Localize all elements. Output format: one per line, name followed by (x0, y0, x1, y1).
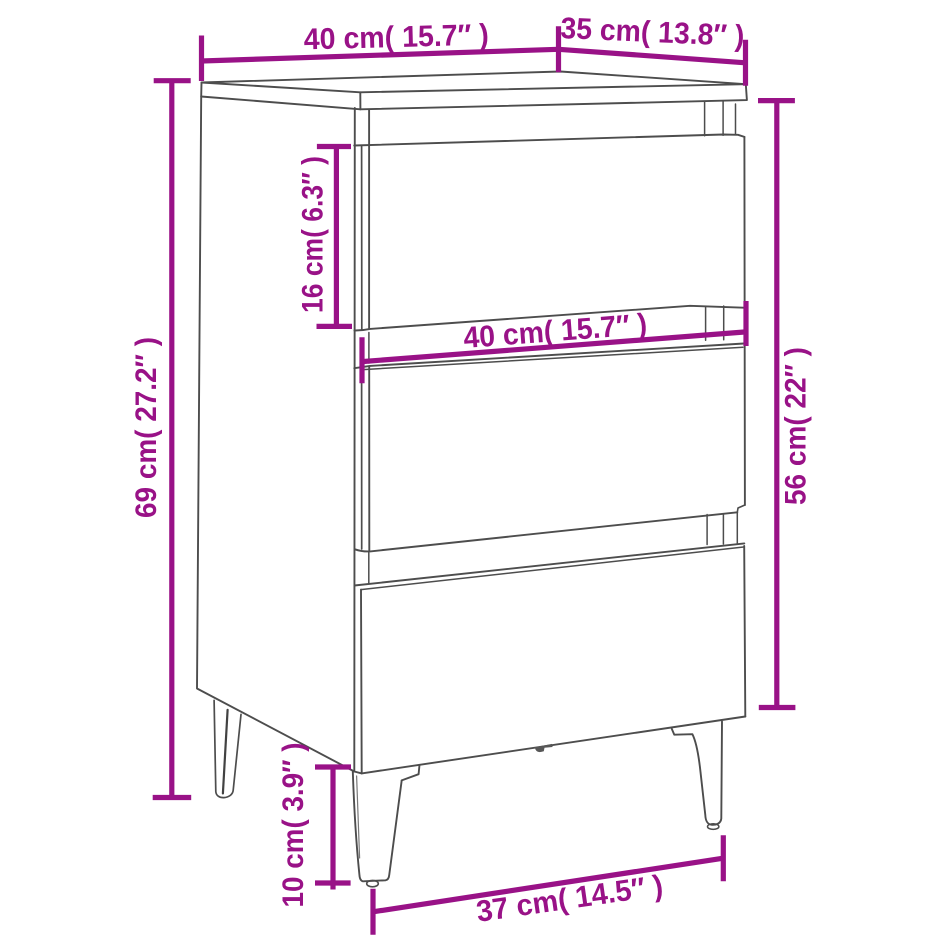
svg-text:10 cm( 3.9″ ): 10 cm( 3.9″ ) (277, 743, 310, 908)
svg-text:56 cm( 22″ ): 56 cm( 22″ ) (780, 347, 813, 505)
svg-text:69 cm( 27.2″ ): 69 cm( 27.2″ ) (130, 337, 163, 518)
svg-text:40 cm( 15.7″ ): 40 cm( 15.7″ ) (303, 19, 489, 57)
svg-text:16 cm( 6.3″ ): 16 cm( 6.3″ ) (296, 156, 329, 313)
